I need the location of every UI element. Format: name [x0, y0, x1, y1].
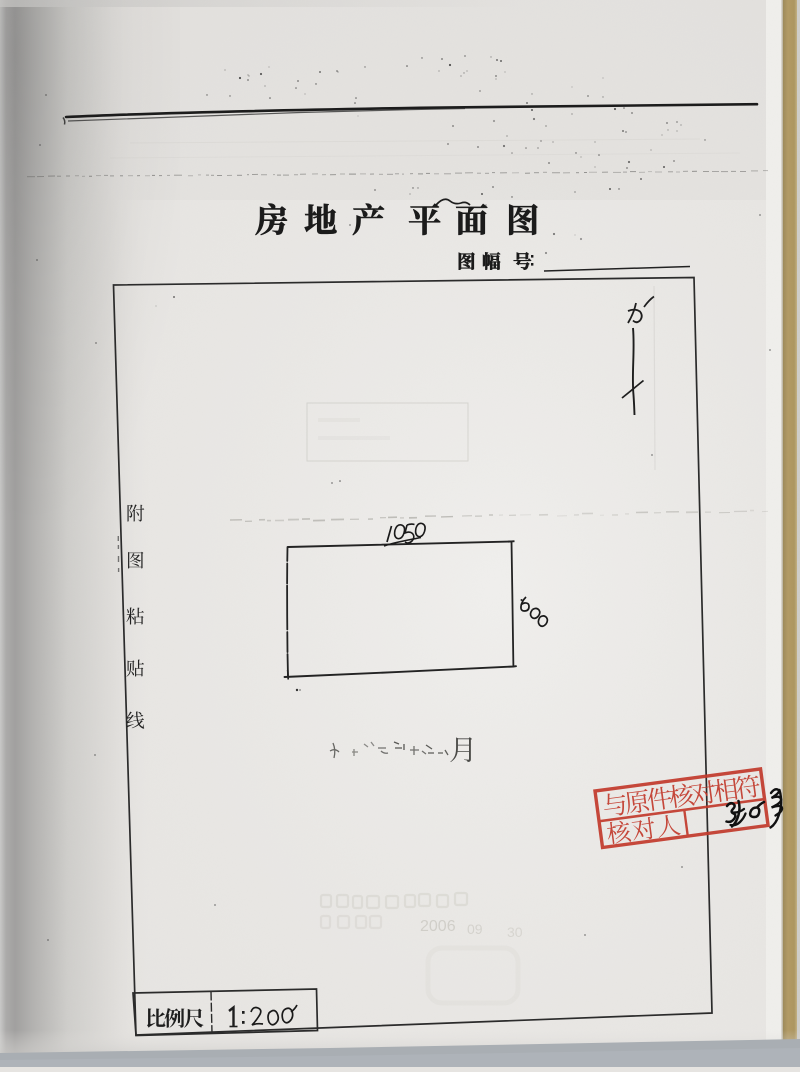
svg-text:09: 09: [467, 921, 483, 937]
svg-text:30: 30: [507, 924, 523, 940]
svg-text:2006: 2006: [420, 918, 456, 935]
